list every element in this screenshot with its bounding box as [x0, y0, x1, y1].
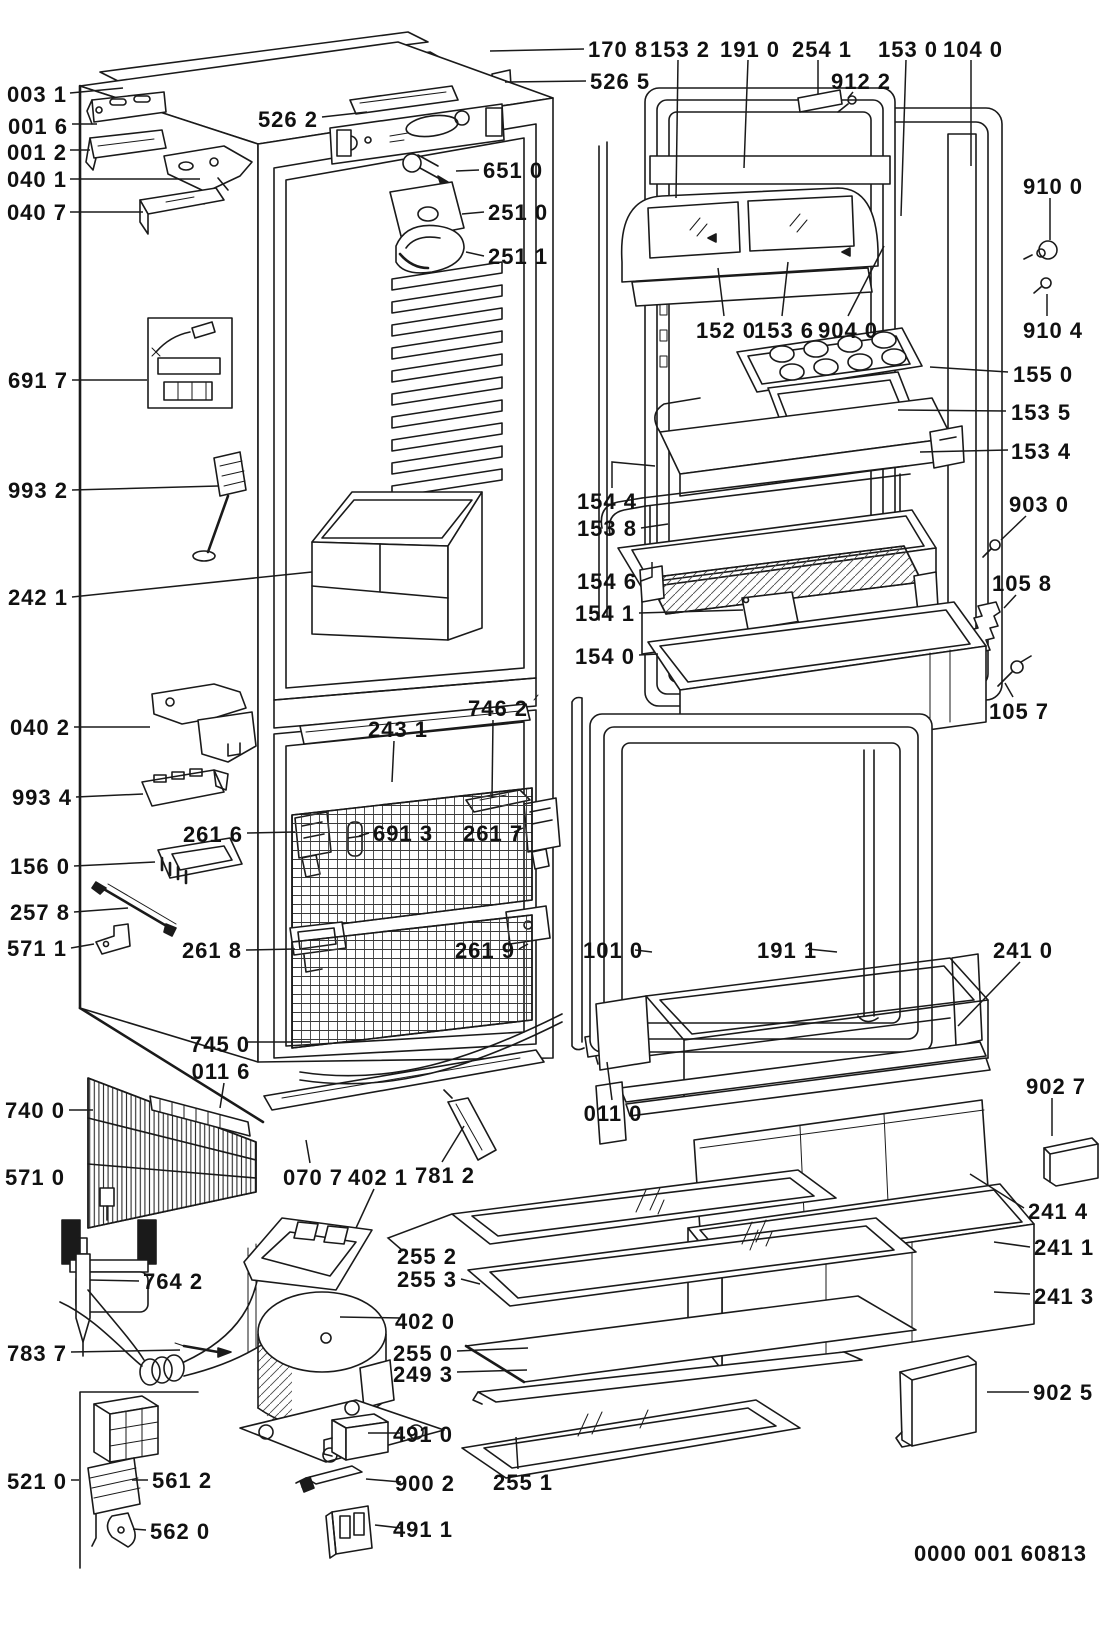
- part-label-155-0: 155 0: [1013, 362, 1073, 387]
- part-label-154-1: 154 1: [575, 601, 635, 626]
- part-label-257-8: 257 8: [10, 900, 70, 925]
- part-label-242-1: 242 1: [8, 585, 68, 610]
- part-label-241-0: 241 0: [993, 938, 1053, 963]
- part-label-903-0: 903 0: [1009, 492, 1069, 517]
- leader-line-261-8: [246, 949, 295, 950]
- part-label-170-8: 170 8: [588, 37, 648, 62]
- part-cover-902-5: [896, 1356, 976, 1447]
- part-label-241-1: 241 1: [1034, 1235, 1094, 1260]
- part-label-571-0: 571 0: [5, 1165, 65, 1190]
- part-label-040-1: 040 1: [7, 167, 67, 192]
- part-label-910-0: 910 0: [1023, 174, 1083, 199]
- part-label-745-0: 745 0: [190, 1032, 250, 1057]
- part-label-251-1: 251 1: [488, 244, 548, 269]
- part-label-191-0: 191 0: [720, 37, 780, 62]
- part-label-783-7: 783 7: [7, 1341, 67, 1366]
- part-label-154-4: 154 4: [577, 489, 637, 514]
- part-label-491-1: 491 1: [393, 1517, 453, 1542]
- part-label-152-0: 152 0: [696, 318, 756, 343]
- part-label-255-2: 255 2: [397, 1244, 457, 1269]
- part-label-0000-001-60813: 0000 001 60813: [914, 1541, 1087, 1566]
- part-label-105-7: 105 7: [989, 699, 1049, 724]
- part-label-746-2: 746 2: [468, 696, 528, 721]
- part-label-070-7: 070 7: [283, 1165, 343, 1190]
- part-label-651-0: 651 0: [483, 158, 543, 183]
- part-label-561-2: 561 2: [152, 1468, 212, 1493]
- part-label-153-8: 153 8: [577, 516, 637, 541]
- part-label-243-1: 243 1: [368, 717, 428, 742]
- part-label-902-5: 902 5: [1033, 1380, 1093, 1405]
- exploded-parts-diagram: 003 1001 6001 2040 1040 7526 2170 8526 5…: [0, 0, 1100, 1647]
- part-label-402-0: 402 0: [395, 1309, 455, 1334]
- part-label-402-1: 402 1: [348, 1165, 408, 1190]
- part-label-521-0: 521 0: [7, 1469, 67, 1494]
- part-label-902-7: 902 7: [1026, 1074, 1086, 1099]
- part-label-101-0: 101 0: [583, 938, 643, 963]
- leader-line-562-0: [133, 1529, 146, 1530]
- part-label-526-2: 526 2: [258, 107, 318, 132]
- part-label-993-2: 993 2: [8, 478, 68, 503]
- part-crisper-drawer-242-1: [312, 492, 482, 640]
- part-label-691-3: 691 3: [373, 821, 433, 846]
- part-label-191-1: 191 1: [757, 938, 817, 963]
- part-label-910-4: 910 4: [1023, 318, 1083, 343]
- part-label-255-3: 255 3: [397, 1267, 457, 1292]
- part-label-154-0: 154 0: [575, 644, 635, 669]
- part-label-241-3: 241 3: [1034, 1284, 1094, 1309]
- part-label-571-1: 571 1: [7, 936, 67, 961]
- part-label-740-0: 740 0: [5, 1098, 65, 1123]
- part-label-153-6: 153 6: [754, 318, 814, 343]
- leader-line-746-2: [492, 720, 493, 798]
- part-dairy-compartment-152-0: [622, 188, 878, 306]
- part-heater-561-2: [88, 1458, 140, 1514]
- part-label-104-0: 104 0: [943, 37, 1003, 62]
- leader-line-153-5: [898, 410, 1006, 411]
- leader-line-402-0: [340, 1317, 401, 1318]
- part-label-900-2: 900 2: [395, 1471, 455, 1496]
- part-label-153-5: 153 5: [1011, 400, 1071, 425]
- part-label-105-8: 105 8: [992, 571, 1052, 596]
- part-label-001-6: 001 6: [8, 114, 68, 139]
- parts-diagram-page: 003 1001 6001 2040 1040 7526 2170 8526 5…: [0, 0, 1100, 1647]
- part-label-764-2: 764 2: [143, 1269, 203, 1294]
- part-label-251-0: 251 0: [488, 200, 548, 225]
- part-label-249-3: 249 3: [393, 1362, 453, 1387]
- part-label-011-0: 011 0: [584, 1101, 643, 1126]
- part-label-154-6: 154 6: [577, 569, 637, 594]
- part-label-255-1: 255 1: [493, 1470, 553, 1495]
- leader-line-651-0: [456, 170, 479, 171]
- part-label-261-6: 261 6: [183, 822, 243, 847]
- part-label-526-5: 526 5: [590, 69, 650, 94]
- part-label-153-2: 153 2: [650, 37, 710, 62]
- part-label-241-4: 241 4: [1028, 1199, 1088, 1224]
- part-label-912-2: 912 2: [831, 69, 891, 94]
- part-label-003-1: 003 1: [7, 82, 67, 107]
- part-label-011-6: 011 6: [192, 1059, 251, 1084]
- leader-line-764-2: [90, 1280, 139, 1281]
- part-label-562-0: 562 0: [150, 1519, 210, 1544]
- part-label-001-2: 001 2: [7, 140, 67, 165]
- leader-line-261-6: [247, 832, 295, 833]
- part-label-691-7: 691 7: [8, 368, 68, 393]
- part-label-261-7: 261 7: [463, 821, 523, 846]
- part-label-993-4: 993 4: [12, 785, 72, 810]
- part-label-040-7: 040 7: [7, 200, 67, 225]
- part-label-781-2: 781 2: [415, 1163, 475, 1188]
- part-label-261-8: 261 8: [182, 938, 242, 963]
- leader-line-526-5: [505, 81, 586, 82]
- part-label-904-0: 904 0: [818, 318, 878, 343]
- part-label-261-9: 261 9: [455, 938, 515, 963]
- part-label-156-0: 156 0: [10, 854, 70, 879]
- part-label-254-1: 254 1: [792, 37, 852, 62]
- part-label-153-0: 153 0: [878, 37, 938, 62]
- part-relay-491-0: [324, 1414, 388, 1460]
- part-label-040-2: 040 2: [10, 715, 70, 740]
- leader-line-154-0: [639, 654, 658, 655]
- part-label-491-0: 491 0: [393, 1422, 453, 1447]
- part-label-153-4: 153 4: [1011, 439, 1071, 464]
